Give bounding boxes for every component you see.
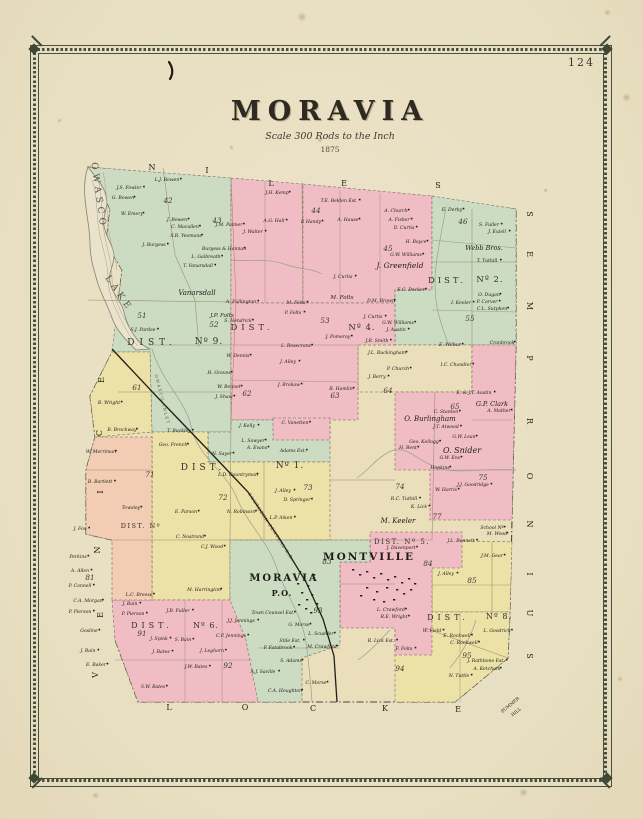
house-dot [143, 212, 145, 214]
house-dot [255, 510, 257, 512]
lot-number: 94 [395, 664, 405, 673]
district-label: DIST. [230, 323, 273, 333]
house-dot [107, 663, 109, 665]
house-dot [88, 527, 90, 529]
lot-number: 92 [223, 661, 233, 670]
lot-number: 93 [313, 606, 323, 615]
house-dot [198, 510, 200, 512]
house-dot [322, 220, 324, 222]
farm-name-label: T. Vanarsdall [183, 263, 213, 269]
lot-number: 84 [423, 559, 433, 568]
big-farm-name-label: M. Keeler [380, 517, 416, 525]
house-dot [405, 608, 407, 610]
farm-name-label: C.A. Morgan [73, 598, 102, 604]
house-dot [301, 383, 303, 385]
house-dot [199, 225, 201, 227]
house-dot [327, 681, 329, 683]
farm-name-label: J. Brokaw [277, 382, 300, 388]
house-dot [501, 223, 503, 225]
house-dot [408, 328, 410, 330]
farm-name-label: J.T. Atwood [432, 424, 459, 430]
farm-name-label: E.C. Decker [396, 287, 426, 293]
house-dot [88, 555, 90, 557]
house-dot [204, 535, 206, 537]
house-dot [476, 539, 478, 541]
district-label: Nº 6. [193, 621, 219, 630]
farm-name-label: B. Brockway [106, 427, 137, 433]
farm-name-label: C.A. Houghton [268, 688, 302, 694]
house-dot [507, 307, 509, 309]
lot-number: 63 [330, 391, 340, 400]
house-dot [511, 629, 513, 631]
farm-name-label: J. Pomeroy [325, 334, 351, 340]
house-dot [457, 572, 459, 574]
farm-name-label: School Nº [480, 525, 504, 531]
farm-name-label: P. Church [386, 366, 409, 372]
farm-name-label: J.H. Kemp [264, 190, 288, 196]
house-dot [188, 218, 190, 220]
hamlet-building-mark [408, 578, 410, 580]
farm-name-label: G. Morse [288, 622, 309, 628]
farm-name-label: K. Lick [410, 504, 427, 510]
house-dot [140, 602, 142, 604]
farm-name-label: W. Merriman [86, 449, 116, 455]
farm-name-label: C. Macallen [171, 224, 199, 230]
big-farm-name-label: M. Folts [329, 295, 353, 301]
district-label: Nº 1. [276, 461, 305, 471]
house-dot [304, 311, 306, 313]
edge-letter-venice: I [96, 490, 105, 493]
house-dot [394, 299, 396, 301]
edge-letter-sempronius: U [525, 610, 534, 617]
lot-number: 91 [137, 629, 146, 638]
atlas-page: 124 MORAVIA Scale 300 Rods to the Inch 1… [0, 0, 643, 819]
farm-name-label: J. Bain [80, 648, 96, 654]
house-dot [231, 371, 233, 373]
lot-number: 44 [310, 206, 321, 215]
farm-name-label: P. Carver [475, 299, 498, 305]
house-dot [299, 360, 301, 362]
house-dot [187, 443, 189, 445]
farm-name-label: J. Bates [151, 649, 170, 655]
big-farm-name-label: O. Snider [443, 446, 482, 455]
farm-name-label: F. Folts [395, 646, 413, 652]
big-farm-name-label: J. Greenfield [374, 261, 423, 270]
edge-letter-sempronius: P [525, 355, 534, 361]
hamlet-building-mark [403, 593, 405, 595]
hamlet-building-mark [305, 608, 307, 610]
farm-name-label: E. & J.T. Austin [456, 390, 492, 396]
house-dot [355, 275, 357, 277]
house-dot [247, 634, 249, 636]
house-dot [294, 489, 296, 491]
district-label: DIST. [127, 338, 176, 348]
house-dot [265, 230, 267, 232]
house-dot [408, 615, 410, 617]
house-dot [201, 234, 203, 236]
farm-name-label: E. Baker [85, 662, 107, 668]
house-dot [427, 240, 429, 242]
farm-name-label: Burgess & Hannan [201, 246, 246, 252]
house-dot [439, 440, 441, 442]
house-dot [99, 629, 101, 631]
farm-name-label: B. Bartlett [87, 479, 112, 485]
house-dot [359, 218, 361, 220]
house-dot [192, 429, 194, 431]
lot-number: 52 [209, 320, 219, 329]
edge-letter-niles: L [268, 179, 274, 188]
farm-name-label: J. Burgess [141, 242, 166, 248]
house-dot [278, 670, 280, 672]
hamlet-building-mark [401, 582, 403, 584]
farm-name-label: S.J. Pardee [130, 327, 155, 333]
house-dot [390, 339, 392, 341]
hamlet-building-mark [387, 579, 389, 581]
house-dot [98, 649, 100, 651]
farm-name-label: J.S. Fowler [116, 185, 143, 191]
house-dot [286, 219, 288, 221]
house-dot [224, 545, 226, 547]
farm-name-label: P. Connell [68, 583, 92, 589]
farm-name-label: C.L. Sutphen [477, 306, 507, 312]
house-dot [458, 488, 460, 490]
farm-name-label: B. Wright [97, 400, 120, 406]
farm-name-label: J. Leghorn [199, 648, 224, 654]
house-dot [359, 199, 361, 201]
farm-name-label: C.J. Wood [201, 544, 223, 550]
house-dot [416, 546, 418, 548]
house-dot [172, 650, 174, 652]
farm-name-label: P. Pierson [121, 611, 145, 617]
edge-letter-venice: E [96, 612, 105, 618]
house-dot [396, 639, 398, 641]
house-dot [311, 498, 313, 500]
hamlet-building-mark [376, 591, 378, 593]
district-label: DIST. Nº 5. [374, 538, 430, 546]
district-label: DIST. [427, 613, 469, 622]
farm-name-label: J.J. Goodridge [456, 482, 489, 488]
house-dot [471, 674, 473, 676]
edge-letter-sempronius: R [525, 418, 534, 425]
farm-name-label: Town Counsel Est. [251, 610, 295, 616]
house-dot [450, 466, 452, 468]
farm-name-label: J.M. Gear [480, 553, 504, 559]
lot-number: 55 [465, 314, 475, 323]
district-label: DIST. [181, 463, 225, 473]
lot-number: 73 [303, 483, 313, 492]
edge-letter-niles: S [435, 181, 440, 190]
farm-name-label: S.W. Bates [141, 684, 166, 690]
house-dot [460, 425, 462, 427]
farm-name-label: J.B. Smith [364, 338, 388, 344]
lot-number: 62 [242, 389, 252, 398]
hamlet-building-mark [310, 612, 312, 614]
farm-name-label: P. Pierson [68, 609, 92, 615]
edge-letter-sempronius: E [525, 251, 534, 257]
house-dot [136, 428, 138, 430]
house-dot [233, 452, 235, 454]
house-dot [504, 554, 506, 556]
farm-name-label: M. Wood [486, 531, 508, 537]
farm-name-label: I. Keeler [450, 300, 472, 306]
farm-name-label: C.P. Jennings [216, 633, 247, 639]
house-dot [509, 230, 511, 232]
house-dot [459, 410, 461, 412]
house-dot [241, 385, 243, 387]
farm-name-label: T. Tuthill [477, 258, 498, 264]
farm-name-label: O. Dugan [478, 292, 500, 298]
house-dot [225, 649, 227, 651]
house-dot [514, 341, 516, 343]
house-dot [250, 354, 252, 356]
farm-name-label: A. Fisher [387, 217, 410, 223]
edge-letter-locke: L [166, 703, 172, 712]
house-dot [293, 646, 295, 648]
edge-letter-locke: C [310, 704, 316, 713]
edge-letter-locke: K [382, 704, 389, 713]
big-farm-name-label: Vanarsdall [178, 289, 215, 297]
house-dot [257, 300, 259, 302]
farm-name-label: J. Walter [242, 229, 263, 235]
house-dot [406, 351, 408, 353]
farm-name-label: A.G. Hall [263, 218, 285, 224]
hamlet-building-mark [359, 574, 361, 576]
house-dot [418, 446, 420, 448]
district-label: Nº 9. [195, 337, 224, 347]
house-dot [302, 659, 304, 661]
house-dot [443, 629, 445, 631]
district-label: DIST. [428, 276, 466, 286]
edge-letter-niles: E [341, 179, 347, 188]
house-dot [334, 632, 336, 634]
house-dot [461, 456, 463, 458]
house-dot [234, 395, 236, 397]
house-dot [414, 321, 416, 323]
hamlet-building-mark [380, 573, 382, 575]
house-dot [507, 532, 509, 534]
hamlet-building-mark [352, 569, 354, 571]
house-dot [214, 264, 216, 266]
farm-name-label: A. Church [383, 208, 407, 214]
house-dot [143, 186, 145, 188]
place-label: P.O. [272, 588, 293, 598]
house-dot [351, 335, 353, 337]
district-area-61 [90, 352, 152, 437]
hamlet-building-mark [373, 599, 375, 601]
house-dot [353, 387, 355, 389]
house-dot [146, 612, 148, 614]
lot-number: 81 [85, 573, 94, 582]
big-farm-name-label: O. Burlingham [404, 415, 456, 423]
hamlet-building-mark [393, 599, 395, 601]
house-dot [494, 391, 496, 393]
farm-name-label: Gosline [80, 628, 98, 634]
farm-name-label: G.W. Eno [440, 455, 461, 461]
farm-name-label: S. Fuller [479, 222, 500, 228]
hamlet-building-mark [298, 604, 300, 606]
edge-letter-sempronius: S [525, 211, 534, 216]
farm-name-label: C. Vanetten [282, 420, 309, 426]
farm-name-label: P. Handy [300, 219, 322, 225]
house-dot [170, 637, 172, 639]
farm-name-label: D. Springer [282, 497, 311, 503]
house-dot [504, 526, 506, 528]
house-dot [252, 319, 254, 321]
edge-letter-venice: V [91, 672, 100, 679]
farm-name-label: J. Berry [367, 374, 386, 380]
farm-name-label: L. Scudder [307, 631, 334, 637]
hamlet-building-mark [301, 592, 303, 594]
house-dot [411, 218, 413, 220]
district-area-west [86, 437, 152, 600]
farm-name-label: J. Shaw [214, 394, 232, 400]
district-area-43 [231, 178, 303, 303]
lot-number: 72 [218, 493, 228, 502]
edge-letter-niles: N [149, 163, 156, 172]
farm-name-label: L.J. Bowen [154, 177, 180, 183]
farm-name-label: W. Emery [121, 211, 143, 217]
hamlet-building-mark [307, 585, 309, 587]
ink-mark [169, 62, 172, 79]
farm-name-label: A. Ketchum [473, 666, 502, 672]
edge-letter-locke: E [455, 705, 461, 714]
house-dot [478, 641, 480, 643]
house-dot [167, 243, 169, 245]
hamlet-building-mark [410, 589, 412, 591]
house-dot [476, 435, 478, 437]
farm-name-label: S.R. Yeomans [170, 233, 202, 239]
corner-label-summer-hill: HILL [511, 707, 523, 718]
edge-letter-venice: C [95, 430, 104, 436]
hamlet-building-mark [396, 589, 398, 591]
big-farm-name-label: Webb Bros. [465, 244, 503, 252]
hamlet-building-mark [306, 599, 308, 601]
farm-name-label: E. Rockwell [442, 633, 471, 639]
big-farm-name-label: G.P. Clark [476, 400, 508, 408]
lot-number: 71 [145, 470, 154, 479]
house-dot [310, 623, 312, 625]
hamlet-building-mark [366, 587, 368, 589]
house-dot [500, 667, 502, 669]
farm-name-label: J. Alley [274, 488, 291, 494]
farm-name-label: A. Mather [486, 408, 511, 414]
edge-letter-locke: O [242, 703, 249, 712]
farm-name-label: G. Bowen [112, 195, 134, 201]
farm-name-label: J. Bain [122, 601, 138, 607]
farm-name-label: W. Harris [435, 487, 457, 493]
farm-name-label: L. Galbreath [190, 254, 220, 260]
house-dot [257, 619, 259, 621]
farm-name-label: Towsley [122, 505, 141, 511]
farm-name-label: L. Rosecrans [280, 343, 312, 349]
edge-letter-sempronius: N [525, 521, 534, 528]
house-dot [102, 599, 104, 601]
lot-number: 64 [383, 386, 393, 395]
house-dot [385, 315, 387, 317]
farm-name-label: E. Parson [174, 509, 197, 515]
farm-name-label: E. Wilbur [438, 342, 462, 348]
hamlet-building-mark [316, 603, 318, 605]
farm-name-label: T. Buckley [167, 428, 191, 434]
farm-name-label: J. Curtis [333, 274, 353, 280]
house-dot [153, 593, 155, 595]
house-dot [408, 209, 410, 211]
hamlet-building-mark [414, 583, 416, 585]
hamlet-building-mark [311, 594, 313, 596]
district-label: Nº 8. [486, 612, 512, 621]
house-dot [268, 446, 270, 448]
house-dot [93, 610, 95, 612]
lot-number: 43 [211, 216, 222, 225]
farm-name-label: M. Crawford [306, 644, 337, 650]
house-dot [491, 483, 493, 485]
farm-name-label: H. Boyce [405, 239, 427, 245]
farm-name-label: J.W. Bates [184, 664, 208, 670]
house-dot [294, 516, 296, 518]
farm-name-label: A. Hause [336, 217, 358, 223]
farm-name-label: R.E. Wright [379, 614, 407, 620]
hamlet-building-mark [373, 577, 375, 579]
farm-name-label: G.W. Lean [452, 434, 475, 440]
district-label: DIST. [131, 621, 173, 630]
farm-name-label: R.C. Tuthill [390, 496, 418, 502]
house-dot [506, 659, 508, 661]
farm-name-label: C. Nostrand [176, 534, 204, 540]
house-dot [462, 343, 464, 345]
house-dot [244, 247, 246, 249]
farm-name-label: J. Fox [73, 526, 87, 532]
farm-name-label: A.J. Saville [250, 669, 276, 675]
house-dot [193, 638, 195, 640]
farm-name-label: J. Austin [385, 327, 405, 333]
house-dot [303, 639, 305, 641]
farm-name-label: R. Lick Est. [367, 638, 395, 644]
house-dot [307, 301, 309, 303]
farm-name-label: L. Crawford [376, 607, 405, 613]
farm-name-label: N. Tuttle [448, 673, 470, 679]
farm-name-label: Adams Est. [279, 448, 307, 454]
house-dot [336, 645, 338, 647]
farm-name-label: I.C. Chandler [439, 362, 472, 368]
edge-letter-sempronius: S [525, 653, 534, 658]
house-dot [422, 253, 424, 255]
lot-number: 61 [132, 383, 141, 392]
lot-number: 95 [462, 651, 472, 660]
house-dot [463, 208, 465, 210]
farm-name-label: A. Fullington [225, 299, 256, 305]
house-dot [134, 196, 136, 198]
house-dot [472, 363, 474, 365]
farm-name-label: J.B. Fuller [165, 608, 190, 614]
house-dot [220, 588, 222, 590]
farm-name-label: Perkins [68, 554, 87, 560]
farm-name-label: J.L. Buckingham [367, 350, 407, 356]
house-dot [289, 191, 291, 193]
farm-name-label: J.L. Bennett [446, 538, 474, 544]
lot-number: 53 [320, 316, 330, 325]
farm-name-label: L. Goodrich [482, 628, 510, 634]
district-label: Nº 4. [348, 323, 375, 333]
house-dot [309, 421, 311, 423]
house-dot [415, 647, 417, 649]
farm-name-label: G.W. Williams [382, 320, 414, 326]
farm-name-label: P. Folts [284, 310, 302, 316]
farm-name-label: Hopkins [429, 465, 450, 471]
house-dot [157, 328, 159, 330]
farm-name-label: J. Bowen [166, 217, 187, 223]
farm-name-label: L.P. Aiken [269, 515, 293, 521]
house-dot [419, 497, 421, 499]
